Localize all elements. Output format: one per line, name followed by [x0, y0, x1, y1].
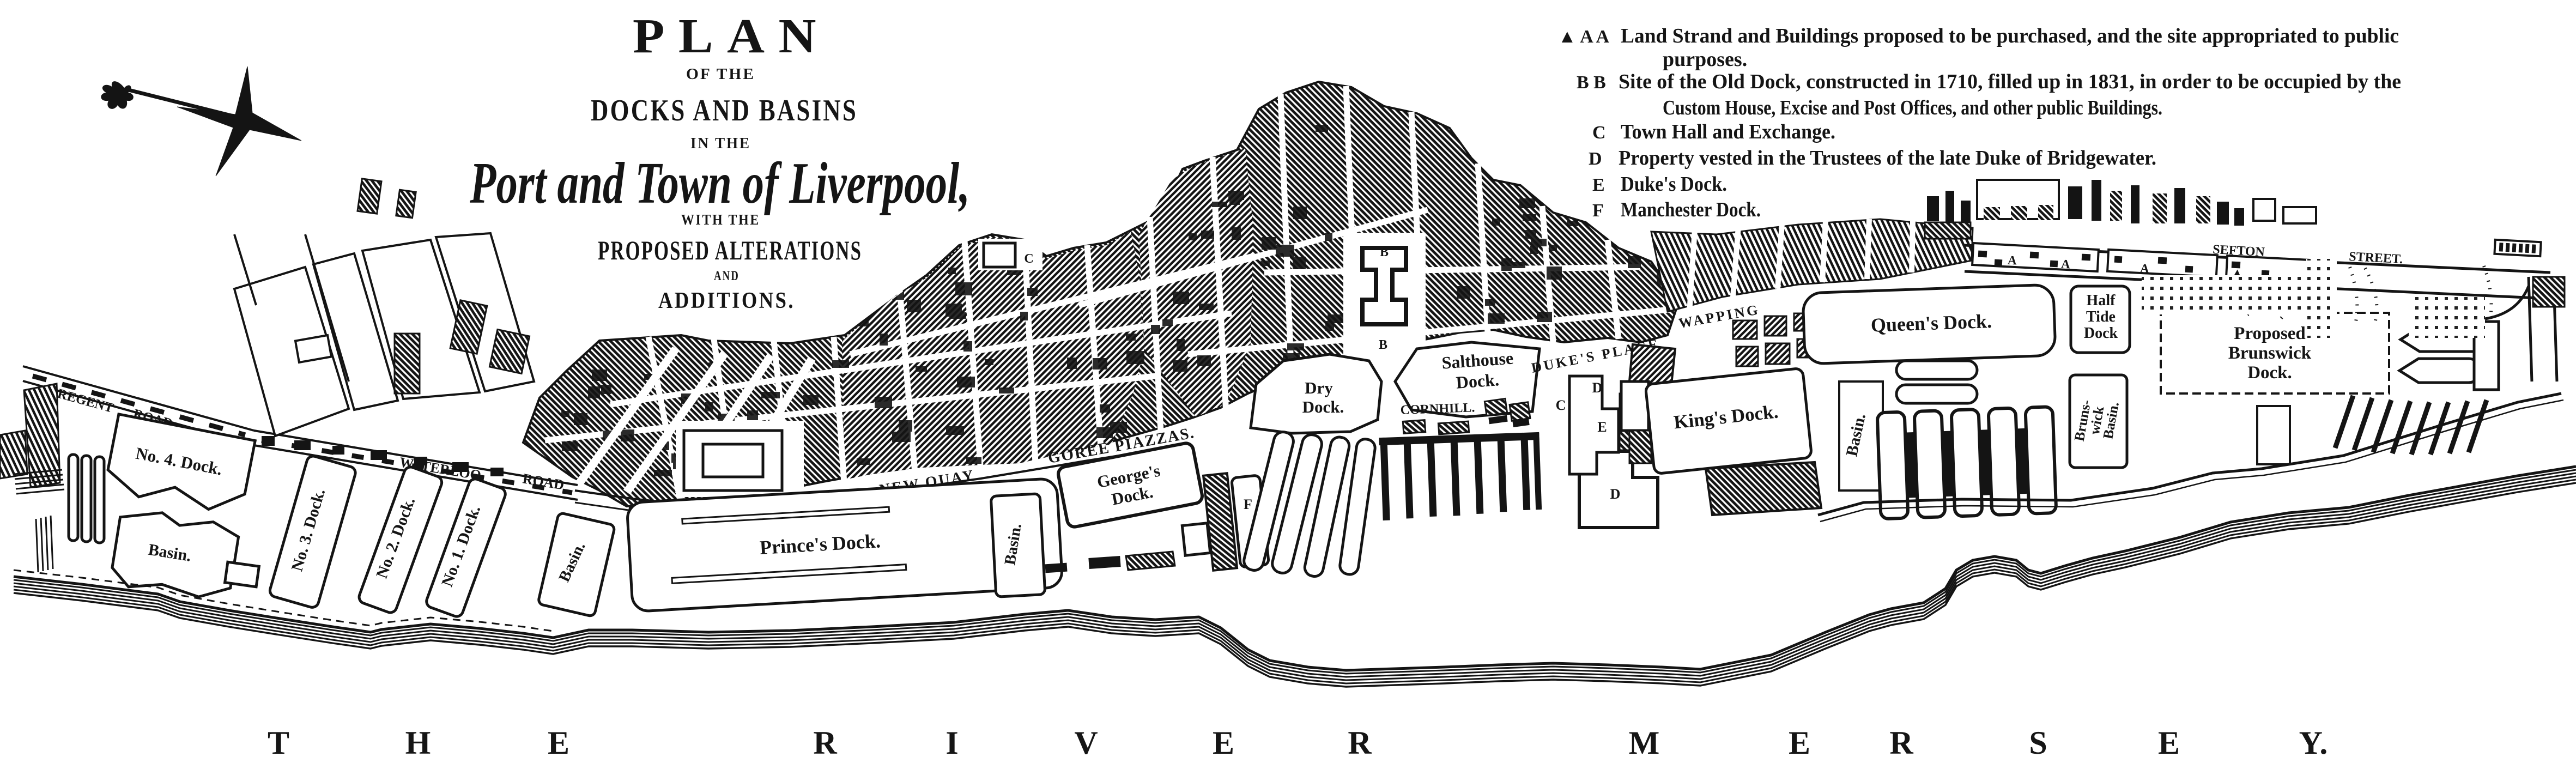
- svg-text:ADDITIONS.: ADDITIONS.: [658, 288, 795, 313]
- svg-text:I: I: [945, 725, 958, 761]
- svg-text:Site of the Old Dock, construc: Site of the Old Dock, constructed in 171…: [1619, 70, 2401, 93]
- svg-text:E: E: [548, 725, 569, 761]
- svg-text:E: E: [1213, 725, 1234, 761]
- svg-text:Duke's Dock.: Duke's Dock.: [1621, 173, 1727, 196]
- svg-text:E: E: [1597, 419, 1607, 435]
- svg-text:V: V: [1074, 725, 1098, 761]
- svg-text:R: R: [1889, 725, 1913, 761]
- svg-text:Half: Half: [2087, 292, 2116, 309]
- svg-text:H: H: [405, 725, 431, 761]
- svg-text:B B: B B: [1577, 72, 1606, 93]
- svg-text:E: E: [1789, 725, 1810, 761]
- svg-text:AND: AND: [714, 269, 740, 283]
- svg-text:B: B: [1379, 338, 1387, 352]
- svg-text:Manchester Dock.: Manchester Dock.: [1621, 198, 1761, 221]
- svg-text:Queen's Dock.: Queen's Dock.: [1870, 310, 1992, 336]
- svg-text:PLAN: PLAN: [633, 9, 830, 63]
- svg-text:CORNHILL.: CORNHILL.: [1400, 401, 1475, 417]
- svg-text:D: D: [1610, 486, 1621, 502]
- svg-text:▲ A A: ▲ A A: [1558, 27, 1610, 47]
- svg-text:Land Strand and Buildings prop: Land Strand and Buildings proposed to be…: [1621, 25, 2399, 47]
- svg-text:IN THE: IN THE: [690, 135, 751, 152]
- svg-text:B: B: [1380, 245, 1389, 259]
- svg-text:Proposed: Proposed: [2234, 324, 2305, 343]
- svg-text:A: A: [2060, 257, 2070, 271]
- svg-text:D: D: [1592, 380, 1603, 396]
- svg-text:Dock: Dock: [2084, 325, 2118, 342]
- svg-text:Dock.: Dock.: [2247, 363, 2292, 383]
- svg-text:Dock.: Dock.: [1456, 370, 1500, 392]
- svg-text:purposes.: purposes.: [1663, 48, 1747, 71]
- svg-text:Custom House, Excise and Post: Custom House, Excise and Post Offices, a…: [1663, 96, 2162, 119]
- svg-text:S: S: [2029, 725, 2047, 761]
- svg-text:C: C: [1024, 252, 1033, 266]
- svg-text:D: D: [1589, 149, 1602, 169]
- svg-text:A: A: [2007, 253, 2017, 268]
- svg-text:DOCKS AND BASINS: DOCKS AND BASINS: [591, 94, 858, 128]
- svg-text:C: C: [1592, 123, 1606, 143]
- svg-text:A: A: [2139, 262, 2149, 276]
- svg-text:OF THE: OF THE: [686, 65, 755, 83]
- svg-text:Y.: Y.: [2299, 725, 2328, 761]
- svg-text:E: E: [1592, 175, 1605, 195]
- svg-text:Tide: Tide: [2086, 308, 2116, 325]
- svg-text:T: T: [268, 725, 289, 761]
- svg-text:Town Hall and Exchange.: Town Hall and Exchange.: [1621, 120, 1835, 143]
- svg-text:E: E: [2158, 725, 2180, 761]
- svg-text:WITH THE: WITH THE: [681, 211, 760, 228]
- svg-text:Brunswick: Brunswick: [2228, 343, 2312, 363]
- svg-text:PROPOSED ALTERATIONS: PROPOSED ALTERATIONS: [598, 235, 862, 265]
- svg-text:M: M: [1629, 725, 1660, 761]
- svg-text:R: R: [813, 725, 837, 761]
- svg-text:Dock.: Dock.: [1302, 397, 1344, 416]
- svg-text:C: C: [1556, 397, 1566, 413]
- svg-text:Dry: Dry: [1305, 378, 1333, 397]
- svg-text:Port and Town of Liverpool,: Port and Town of Liverpool,: [469, 151, 970, 216]
- svg-text:F: F: [1244, 496, 1252, 512]
- svg-text:F: F: [1592, 201, 1604, 221]
- svg-text:STREET.: STREET.: [2349, 250, 2403, 267]
- svg-text:Property vested in the Trustee: Property vested in the Trustees of the l…: [1619, 147, 2156, 169]
- svg-text:R: R: [1348, 725, 1372, 761]
